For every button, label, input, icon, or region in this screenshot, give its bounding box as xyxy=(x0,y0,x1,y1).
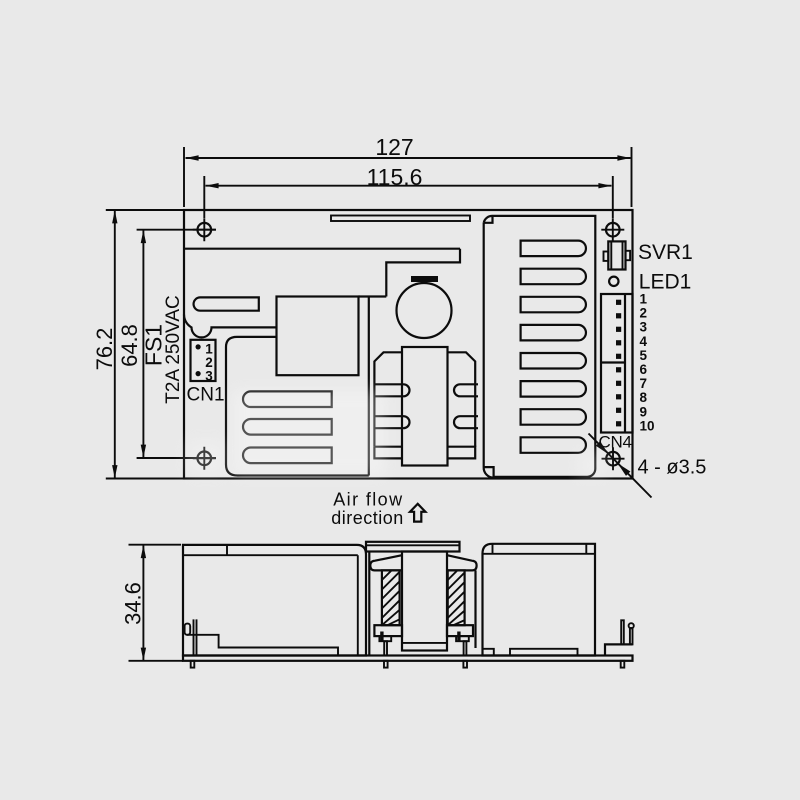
svg-text:115.6: 115.6 xyxy=(367,164,423,190)
svg-text:5: 5 xyxy=(640,348,648,363)
svg-text:4 - ø3.5: 4 - ø3.5 xyxy=(638,457,707,479)
svg-text:LED1: LED1 xyxy=(639,271,692,294)
svg-text:6: 6 xyxy=(640,362,648,377)
svg-text:1: 1 xyxy=(640,292,648,307)
svg-text:9: 9 xyxy=(640,404,648,419)
svg-text:3: 3 xyxy=(205,368,213,383)
svg-text:10: 10 xyxy=(640,418,655,433)
svg-text:direction: direction xyxy=(331,508,404,528)
svg-text:8: 8 xyxy=(640,390,648,405)
svg-text:3: 3 xyxy=(640,320,648,335)
svg-text:4: 4 xyxy=(640,334,648,349)
svg-text:34.6: 34.6 xyxy=(121,582,146,625)
svg-text:7: 7 xyxy=(640,376,648,391)
svg-text:Air flow: Air flow xyxy=(333,489,403,509)
svg-text:2: 2 xyxy=(640,306,648,321)
svg-text:64.8: 64.8 xyxy=(117,324,142,367)
svg-text:T2A 250VAC: T2A 250VAC xyxy=(163,295,184,403)
svg-text:CN1: CN1 xyxy=(187,385,225,406)
svg-text:127: 127 xyxy=(375,134,413,160)
svg-text:76.2: 76.2 xyxy=(92,328,117,371)
svg-text:SVR1: SVR1 xyxy=(638,241,693,264)
svg-text:CN4: CN4 xyxy=(599,433,632,452)
